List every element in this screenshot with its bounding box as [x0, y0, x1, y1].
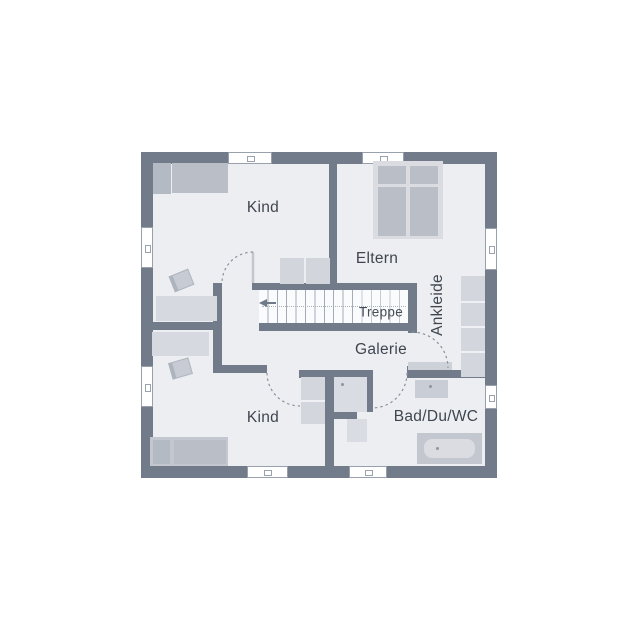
- bed-mattress: [172, 163, 228, 193]
- wall-kind-divider: [141, 322, 222, 330]
- cabinet-divider: [301, 400, 325, 402]
- bed-mattress: [410, 187, 438, 236]
- desk: [156, 296, 217, 321]
- window-right-bad: [485, 385, 497, 409]
- wall-stairs-top: [252, 283, 417, 290]
- tall-cabinet: [301, 377, 325, 424]
- bed-mattress: [378, 187, 406, 236]
- room-label-kind-bottom: Kind: [247, 409, 279, 427]
- wardrobe-divider: [461, 301, 485, 303]
- window-bottom-bad: [349, 466, 387, 478]
- window-bottom-kind: [247, 466, 288, 478]
- window-handle: [264, 470, 272, 476]
- washbasin: [415, 380, 448, 398]
- shower: [334, 377, 367, 412]
- wardrobe: [461, 276, 485, 377]
- window-left-kind-top: [141, 227, 153, 268]
- wall-bottom: [141, 466, 497, 478]
- window-top-kind: [228, 152, 272, 164]
- bed-pillow: [153, 440, 170, 464]
- wall-kind-eltern: [329, 164, 337, 290]
- window-handle: [145, 245, 151, 253]
- wall-center-vertical: [325, 378, 334, 466]
- room-label-kind-top: Kind: [247, 199, 279, 217]
- wall-right: [485, 152, 497, 478]
- wall-shower-stub: [367, 370, 373, 412]
- window-right-eltern: [485, 228, 497, 270]
- bed-pillow: [378, 166, 406, 184]
- wardrobe-divider: [461, 326, 485, 328]
- sideboard: [408, 362, 452, 370]
- bathtub-inner: [424, 439, 475, 458]
- bed-pillow: [153, 163, 171, 194]
- bathtub-drain: [436, 447, 439, 450]
- wardrobe-divider: [461, 351, 485, 353]
- window-left-kind-bottom: [141, 366, 153, 407]
- window-handle: [365, 470, 373, 476]
- wall-stairs-bottom: [259, 323, 408, 331]
- bed-mattress: [174, 440, 226, 464]
- window-handle: [145, 384, 151, 392]
- storage-box: [306, 258, 330, 284]
- room-label-eltern: Eltern: [356, 250, 398, 268]
- room-label-ankleide: Ankleide: [429, 274, 447, 336]
- washbasin-tap: [429, 385, 432, 388]
- wall-landing-bottom: [213, 365, 267, 373]
- window-handle: [489, 246, 495, 254]
- wall-wc-stub: [334, 412, 357, 419]
- toilet: [347, 419, 367, 442]
- wall-left: [141, 152, 153, 478]
- window-handle: [489, 395, 495, 402]
- room-label-treppe: Treppe: [359, 305, 403, 320]
- stair-arrow-shaft: [266, 302, 276, 304]
- window-handle: [247, 156, 255, 162]
- wall-stairs-right: [408, 283, 417, 333]
- room-label-bad: Bad/Du/WC: [394, 408, 479, 426]
- shower-drain: [341, 383, 344, 386]
- desk: [152, 332, 209, 356]
- room-label-galerie: Galerie: [355, 341, 407, 359]
- bed-pillow: [410, 166, 438, 184]
- floor-plan-canvas: Kind Eltern Ankleide Treppe Galerie Kind…: [0, 0, 636, 636]
- storage-box: [280, 258, 304, 284]
